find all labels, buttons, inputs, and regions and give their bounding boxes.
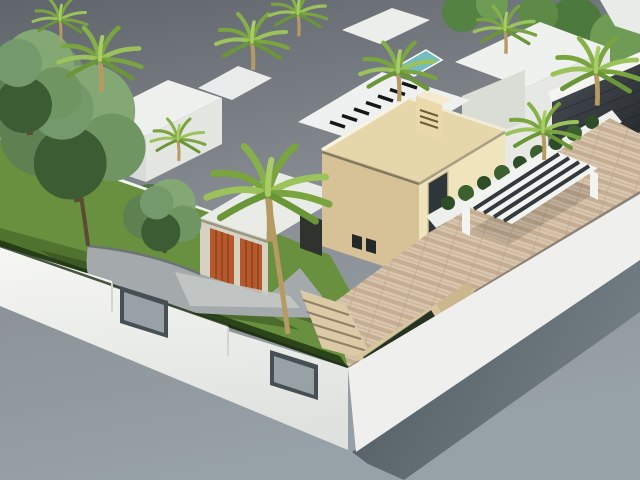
pergola-leg [590, 170, 598, 200]
pergola-leg [462, 204, 470, 236]
render-canvas [0, 0, 640, 480]
architectural-render-image [0, 0, 640, 480]
